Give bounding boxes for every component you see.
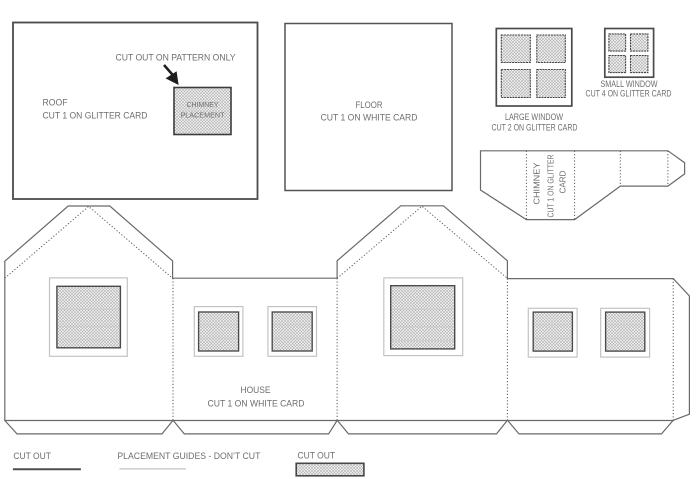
svg-text:CUT 1 ON WHITE CARD: CUT 1 ON WHITE CARD: [208, 399, 305, 410]
svg-text:LARGE WINDOW: LARGE WINDOW: [505, 112, 563, 122]
svg-text:CUT 2 ON GLITTER CARD: CUT 2 ON GLITTER CARD: [492, 123, 578, 133]
svg-text:CHIMNEY: CHIMNEY: [187, 102, 219, 109]
svg-text:CUT OUT: CUT OUT: [13, 451, 51, 461]
svg-text:CUT 4 ON GLITTER CARD: CUT 4 ON GLITTER CARD: [586, 88, 672, 98]
svg-text:CUT 1 ON GLITTER CARD: CUT 1 ON GLITTER CARD: [43, 110, 148, 121]
svg-text:PLACEMENT: PLACEMENT: [181, 113, 226, 120]
svg-text:PLACEMENT GUIDES - DON’T CUT: PLACEMENT GUIDES - DON’T CUT: [117, 451, 260, 461]
svg-text:CUT 1 ON GLITTER: CUT 1 ON GLITTER: [546, 155, 556, 218]
svg-text:CUT 1 ON WHITE CARD: CUT 1 ON WHITE CARD: [321, 112, 418, 123]
svg-text:HOUSE: HOUSE: [241, 385, 271, 396]
svg-text:CUT OUT ON PATTERN ONLY: CUT OUT ON PATTERN ONLY: [116, 53, 237, 64]
svg-text:CHIMNEY: CHIMNEY: [532, 162, 542, 204]
svg-text:ROOF: ROOF: [43, 98, 68, 109]
svg-text:FLOOR: FLOOR: [356, 100, 383, 111]
svg-text:CUT OUT: CUT OUT: [298, 450, 336, 460]
svg-text:CARD: CARD: [558, 171, 568, 194]
